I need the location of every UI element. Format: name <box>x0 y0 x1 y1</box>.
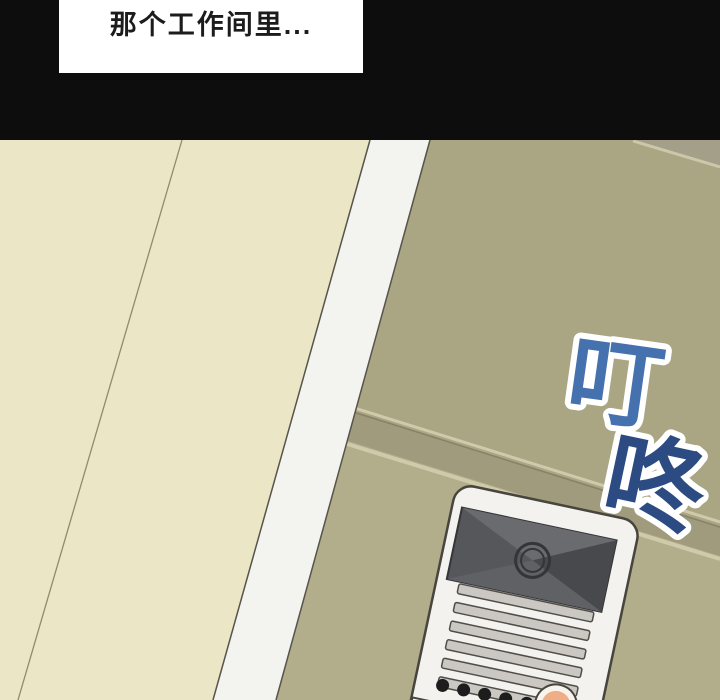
caption-bubble: 那个工作间里... <box>59 0 363 73</box>
caption-text: 那个工作间里... <box>110 3 313 42</box>
scene-artwork: 叮 咚 <box>0 0 720 700</box>
comic-panel: 叮 咚 那个工作间里... <box>0 0 720 700</box>
